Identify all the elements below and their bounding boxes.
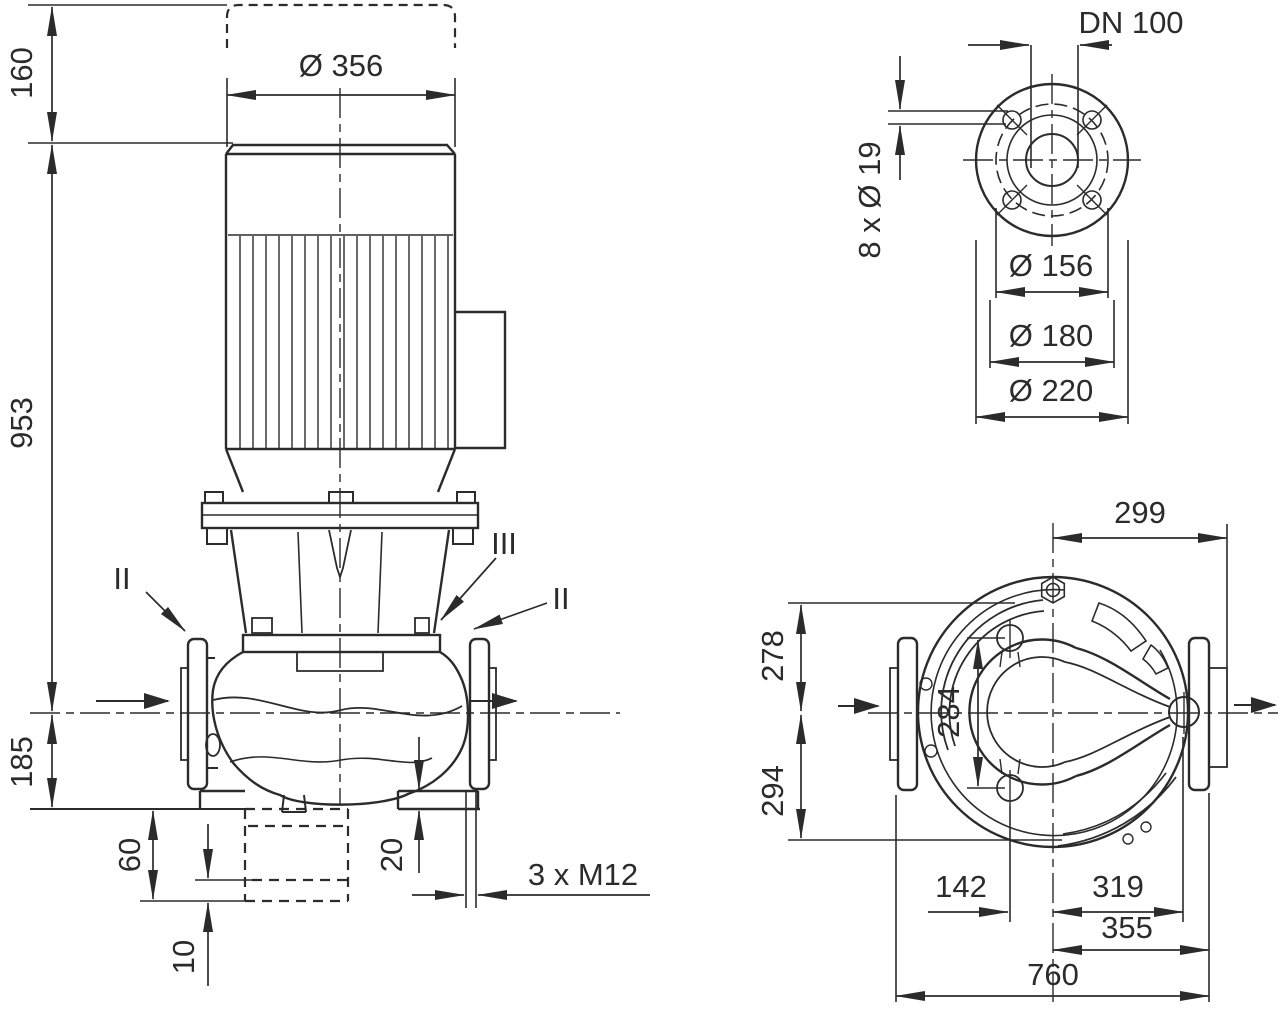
adapter-lug — [207, 528, 227, 544]
dim-flange-outer: Ø 220 — [1009, 373, 1093, 408]
dim-278: 278 — [755, 630, 790, 682]
seal-housing-plate — [243, 635, 440, 652]
section-leader-right — [474, 603, 547, 629]
cooling-fins — [240, 236, 448, 449]
dim-bolt-holes: 8 x Ø 19 — [852, 141, 887, 258]
flange-center-mark — [963, 74, 1141, 246]
lantern-right — [434, 530, 449, 633]
pump-casing — [181, 635, 496, 908]
casing-rib-slot — [1092, 603, 1146, 651]
foundation-dashed-outline — [245, 809, 348, 901]
dim-299: 299 — [1114, 495, 1166, 530]
flange-view: DN 100 8 x Ø 19 Ø 156 Ø 180 Ø 220 — [852, 5, 1184, 424]
pump-dimensional-drawing: 160 953 185 Ø 356 60 10 20 3 x M12 II II… — [0, 0, 1280, 1024]
technical-drawing-page: 160 953 185 Ø 356 60 10 20 3 x M12 II II… — [0, 0, 1280, 1024]
discharge-flange-face-plan — [1209, 668, 1227, 767]
dim-foot-to-anchor: 60 — [112, 838, 147, 872]
side-view: 160 953 185 Ø 356 60 10 20 3 x M12 II II… — [4, 5, 650, 986]
lantern-boss — [252, 618, 272, 633]
dim-294: 294 — [755, 765, 790, 817]
adapter-lug — [453, 528, 473, 544]
plan-centerlines — [868, 523, 1278, 1002]
discharge-throat — [1065, 662, 1170, 707]
section-label-center: III — [491, 526, 517, 561]
dim-bolt-circle: Ø 180 — [1009, 318, 1093, 353]
terminal-box — [455, 312, 505, 448]
dim-760: 760 — [1027, 957, 1079, 992]
dim-anchor-thread: 3 x M12 — [528, 857, 638, 892]
suction-flange-plan — [898, 638, 917, 790]
plan-view: 299 278 294 284 142 319 355 760 — [755, 495, 1278, 1002]
section-label-left: II — [113, 561, 130, 596]
section-labels: II III II — [113, 526, 569, 631]
dim-319: 319 — [1092, 869, 1144, 904]
foundation — [30, 809, 348, 901]
rim-hook — [925, 745, 937, 757]
dim-nominal-diameter: DN 100 — [1078, 5, 1183, 40]
lantern-boss — [415, 618, 429, 633]
dim-foot-plate-thickness: 20 — [374, 838, 409, 872]
adapter-lug — [457, 492, 475, 503]
dim-pilot-diameter: Ø 156 — [1009, 248, 1093, 283]
discharge-throat — [1076, 725, 1170, 776]
drain-bump — [1123, 834, 1133, 844]
lantern-left — [231, 530, 246, 633]
dim-355: 355 — [1101, 910, 1153, 945]
drain-bump — [1141, 822, 1151, 832]
casing-rib-slot — [1143, 645, 1168, 674]
dim-overall-height: 953 — [4, 397, 39, 449]
adapter-bracket — [329, 492, 353, 503]
discharge-throat — [1065, 717, 1170, 762]
dim-motor-diameter: Ø 356 — [299, 48, 383, 83]
dim-axis-to-foot: 185 — [4, 736, 39, 788]
dim-grout-thickness: 10 — [166, 940, 201, 974]
suction-flange — [188, 639, 207, 789]
side-view-dimensions: 160 953 185 Ø 356 60 10 20 3 x M12 — [4, 5, 650, 986]
volute-inner-curve — [230, 757, 432, 763]
section-label-right: II — [552, 581, 569, 616]
section-leader-left — [146, 592, 185, 631]
pump-foot-left — [200, 791, 245, 809]
section-leader-center — [441, 558, 496, 620]
dim-142: 142 — [935, 869, 987, 904]
dim-284: 284 — [931, 686, 966, 738]
dim-fan-clearance: 160 — [4, 47, 39, 99]
centerlines — [30, 88, 620, 805]
fan-cover-dashed — [227, 5, 455, 48]
plan-dimensions: 299 278 294 284 142 319 355 760 — [755, 495, 1227, 1002]
volute-sweep — [1058, 777, 1176, 846]
discharge-flange — [470, 639, 489, 789]
adapter-lug — [205, 492, 223, 503]
